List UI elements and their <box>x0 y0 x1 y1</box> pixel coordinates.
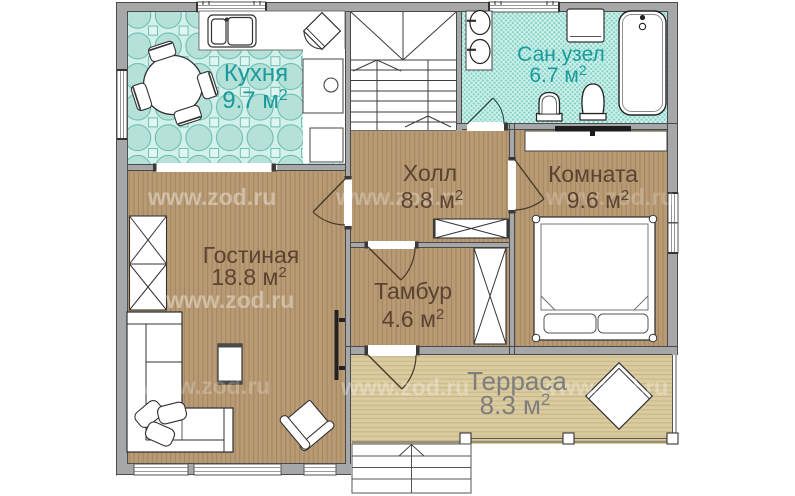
svg-text:8.3 м2: 8.3 м2 <box>480 390 551 420</box>
svg-text:9.7 м2: 9.7 м2 <box>222 87 288 114</box>
svg-text:6.7 м2: 6.7 м2 <box>529 62 586 87</box>
svg-text:Тамбур: Тамбур <box>374 278 452 304</box>
svg-text:Кухня: Кухня <box>224 60 288 87</box>
svg-text:Холл: Холл <box>403 160 457 186</box>
svg-text:www.zod.ru: www.zod.ru <box>340 374 469 400</box>
svg-text:www.zod.ru: www.zod.ru <box>147 184 276 210</box>
svg-text:www.zod.ru: www.zod.ru <box>141 373 270 399</box>
svg-text:Комната: Комната <box>548 161 638 187</box>
svg-text:www.zod.ru: www.zod.ru <box>165 287 294 313</box>
svg-text:Сан.узел: Сан.узел <box>517 43 605 66</box>
svg-text:8.8 м2: 8.8 м2 <box>401 187 464 213</box>
svg-text:18.8 м2: 18.8 м2 <box>211 264 286 290</box>
svg-text:4.6 м2: 4.6 м2 <box>382 306 445 332</box>
svg-text:9.6 м2: 9.6 м2 <box>567 187 630 213</box>
